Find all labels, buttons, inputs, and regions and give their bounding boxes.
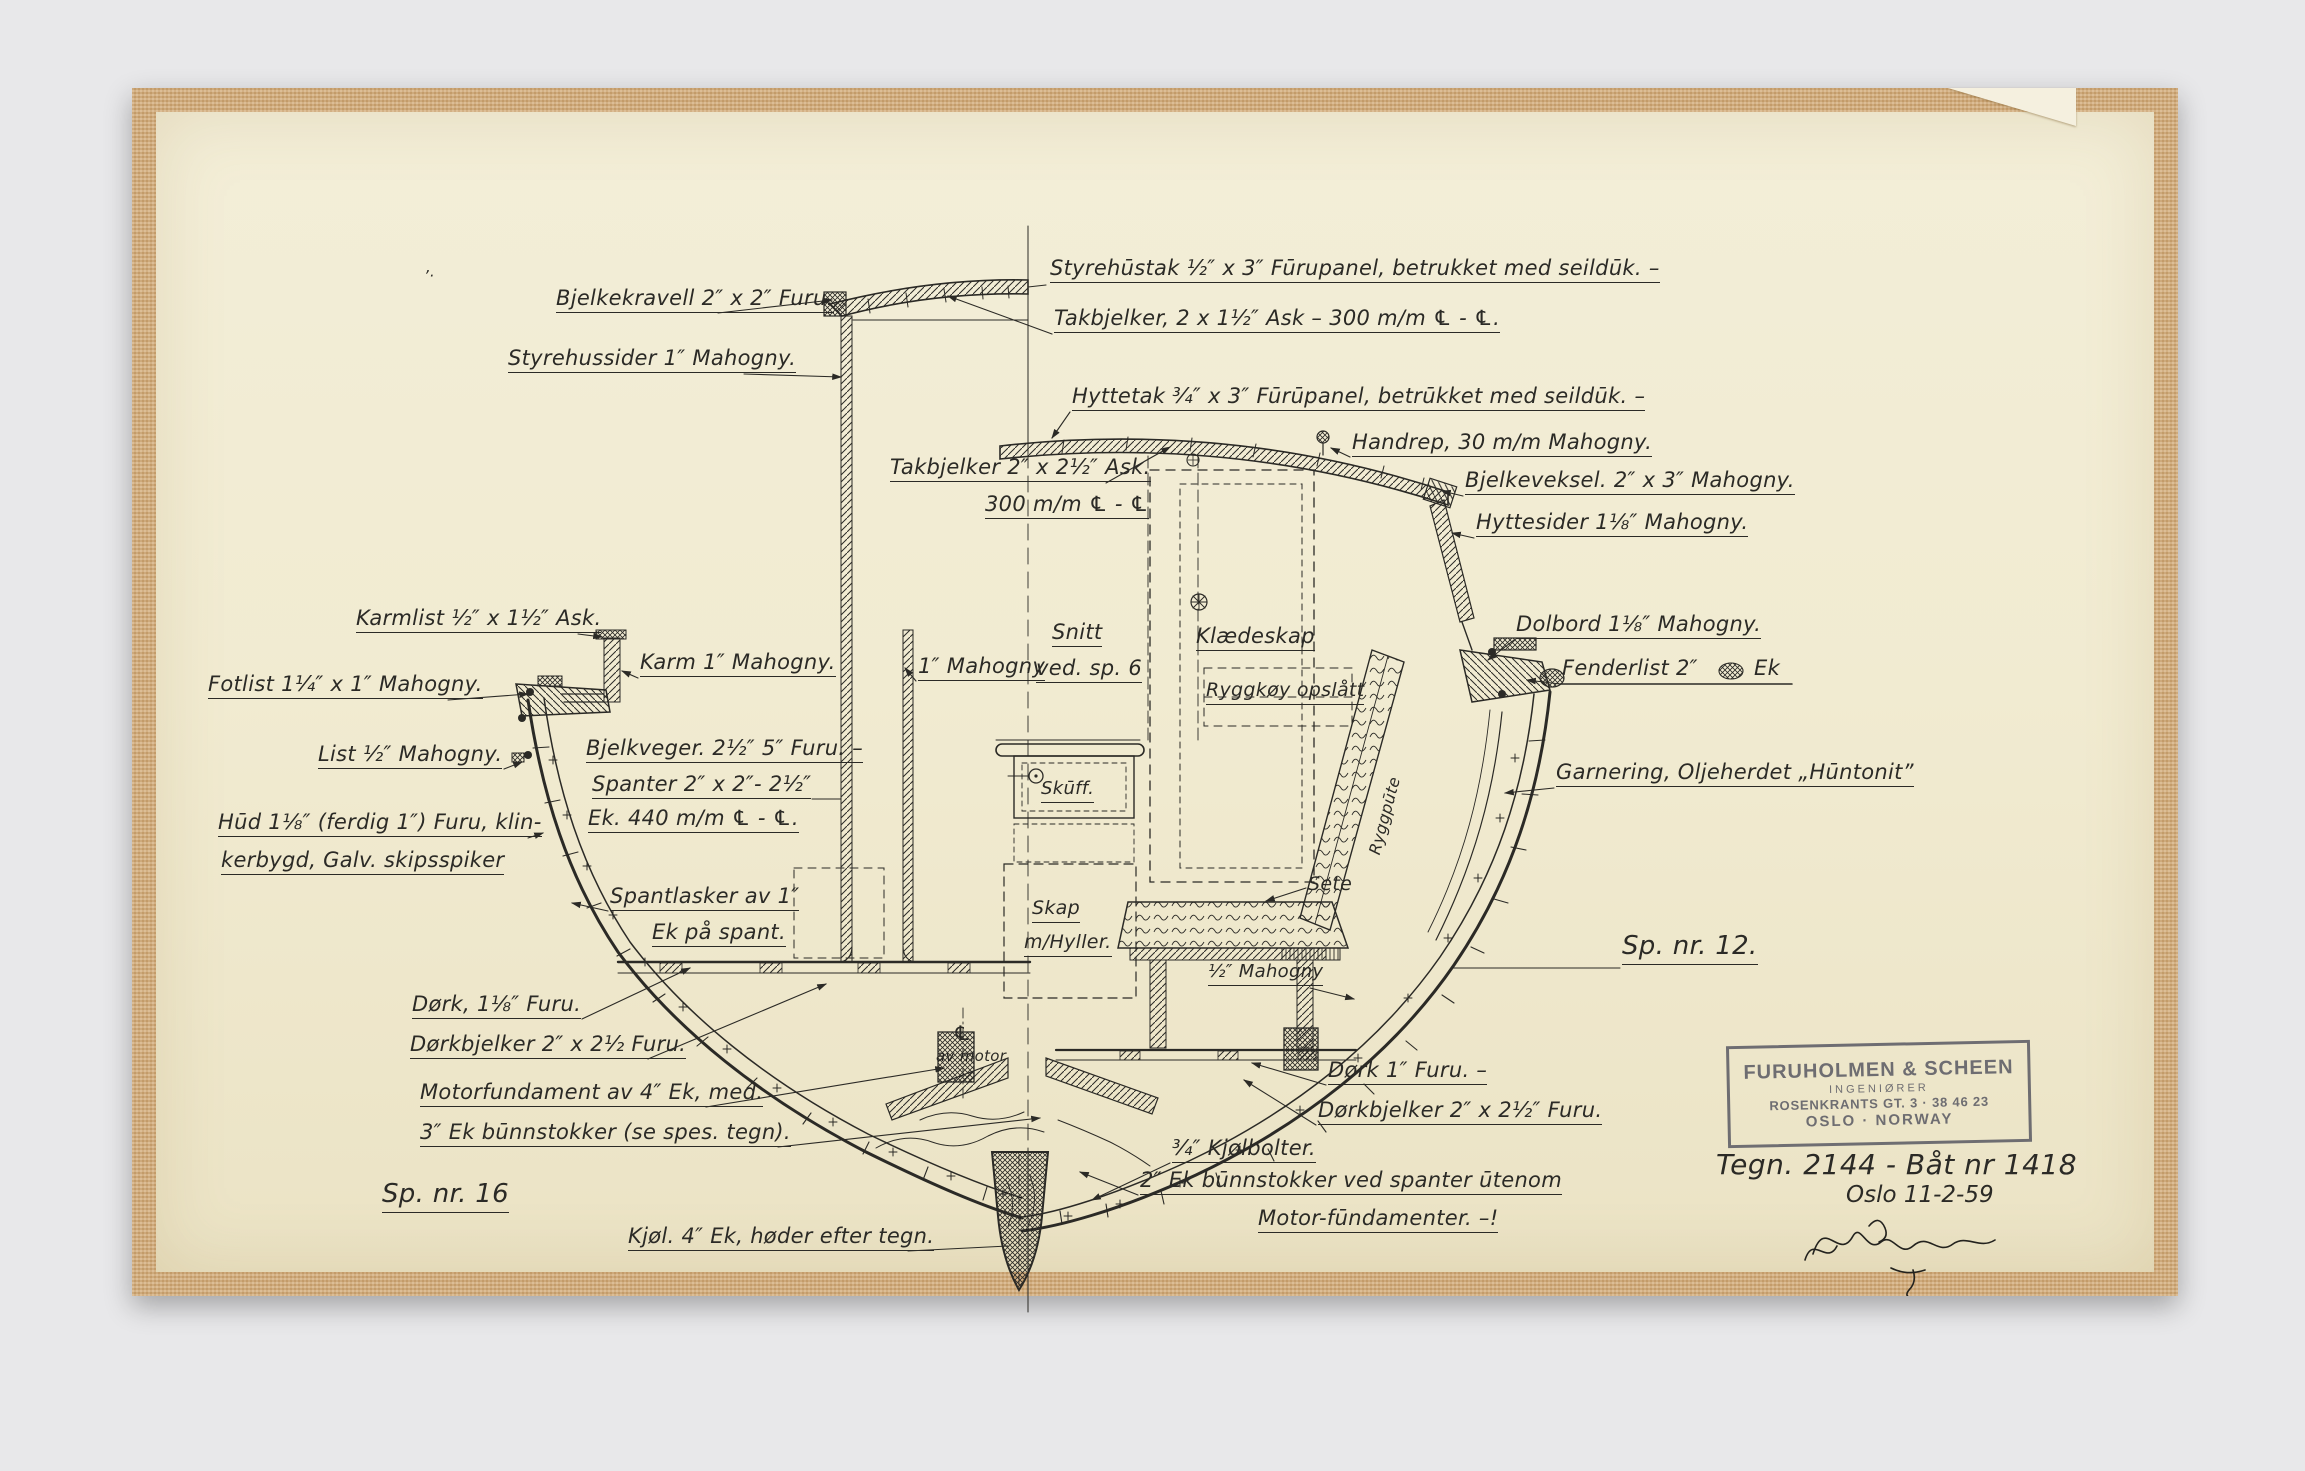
stamp-company-name: FURUHOLMEN & SCHEEN — [1743, 1056, 2014, 1085]
label-dorkbjelker-118: Dørkbjelker 2″ x 2½ Furu. — [410, 1032, 686, 1059]
label-karmlist: Karmlist ½″ x 1½″ Ask. — [356, 606, 601, 633]
label-spantlasker: Spantlasker av 1″ — [610, 884, 799, 911]
label-motor-fundamenter: Motor-fūndamenter. –! — [1258, 1206, 1498, 1233]
label-sete: Sete — [1308, 874, 1352, 896]
label-hud-line2: kerbygd, Galv. skipsspiker — [221, 848, 504, 875]
label-mahogny-1in: 1″ Mahogny — [918, 654, 1045, 681]
company-stamp: FURUHOLMEN & SCHEEN INGENIØRER ROSENKRAN… — [1726, 1040, 2032, 1148]
label-av-motor: av motor — [936, 1048, 1006, 1065]
label-spanter: Spanter 2″ x 2″- 2½″ — [592, 772, 811, 799]
label-list: List ½″ Mahogny. — [318, 742, 502, 769]
label-pen-mark: ’· — [424, 268, 434, 285]
label-ek2-bunnstokker: 2″ Ek būnnstokker ved spanter ūtenom — [1140, 1168, 1562, 1195]
label-handrep: Handrep, 30 m/m Mahogny. — [1352, 430, 1652, 457]
label-sp-nr-12: Sp. nr. 12. — [1622, 932, 1758, 965]
label-bjelkveger: Bjelkveger. 2½″ 5″ Furu. – — [586, 736, 863, 763]
label-ek-paa-spant: Ek på spant. — [652, 920, 786, 947]
label-fenderlist-ek: Ek — [1754, 656, 1780, 680]
label-ved-sp6: ved. sp. 6 — [1036, 656, 1142, 683]
label-styrehussider: Styrehussider 1″ Mahogny. — [508, 346, 796, 373]
stamp-profession: INGENIØRER — [1829, 1082, 1929, 1096]
label-ek3-bunnstokker: 3″ Ek būnnstokker (se spes. tegn). — [420, 1120, 791, 1147]
label-garnering: Garnering, Oljeherdet „Hūntonit” — [1556, 760, 1914, 787]
label-cc-300mm: 300 m/m ℄ - ℄ — [985, 492, 1149, 519]
label-snitt: Snitt — [1052, 620, 1102, 647]
label-takbjelker-hytte: Takbjelker 2″ x 2½″ Ask. — [890, 455, 1151, 482]
label-fenderlist: Fenderlist 2″ — [1562, 656, 1698, 680]
label-kjolbolter: ¾″ Kjølbolter. — [1172, 1136, 1316, 1163]
drawing-number: Tegn. 2144 - Båt nr 1418 — [1716, 1148, 2077, 1181]
stamp-city: OSLO · NORWAY — [1806, 1110, 1954, 1130]
scanned-drawing-page: Styrehūstak ½″ x 3″ Fūrupanel, betrukket… — [0, 0, 2305, 1471]
label-m-hyller: m/Hyller. — [1024, 932, 1112, 957]
label-hyttetak: Hyttetak ¾″ x 3″ Fūrūpanel, betrūkket me… — [1072, 384, 1645, 411]
stamp-address: ROSENKRANTS GT. 3 · 38 46 23 — [1769, 1094, 1989, 1114]
label-dorkbjelker-1: Dørkbjelker 2″ x 2½″ Furu. — [1318, 1098, 1602, 1125]
label-fotlist: Fotlist 1¼″ x 1″ Mahogny. — [208, 672, 483, 699]
label-hyttesider: Hyttesider 1⅛″ Mahogny. — [1476, 510, 1748, 537]
label-takbjelker-styrehus: Takbjelker, 2 x 1½″ Ask – 300 m/m ℄ - ℄. — [1054, 306, 1500, 333]
label-motorfundament: Motorfundament av 4″ Ek, med. — [420, 1080, 763, 1107]
label-dork-118: Dørk, 1⅛″ Furu. — [412, 992, 581, 1019]
label-klaedeskap: Klædeskap — [1196, 624, 1315, 651]
label-styrehustak: Styrehūstak ½″ x 3″ Fūrupanel, betrukket… — [1050, 256, 1660, 283]
label-bjelkekravell: Bjelkekravell 2″ x 2″ Furu. — [556, 286, 834, 313]
label-cl-symbol: ℄ — [953, 1022, 971, 1045]
label-karm: Karm 1″ Mahogny. — [640, 650, 836, 677]
label-kjol: Kjøl. 4″ Ek, høder efter tegn. — [628, 1224, 934, 1251]
label-dolbord: Dolbord 1⅛″ Mahogny. — [1516, 612, 1761, 639]
label-skuff: Skūff. — [1041, 779, 1094, 803]
label-half-mahogny: ½″ Mahogny — [1208, 962, 1323, 986]
label-dork-1: Dørk 1″ Furu. – — [1328, 1058, 1487, 1085]
label-ryggpute: Ryggpūte — [1366, 775, 1404, 857]
label-ryggkoy: Ryggkøy opslått — [1206, 680, 1364, 705]
label-bjelkeveksel: Bjelkeveksel. 2″ x 3″ Mahogny. — [1465, 468, 1795, 495]
label-hud-line1: Hūd 1⅛″ (ferdig 1″) Furu, klin- — [218, 810, 542, 837]
label-sp-nr-16: Sp. nr. 16 — [382, 1180, 509, 1213]
label-ek440: Ek. 440 m/m ℄ - ℄. — [588, 806, 799, 833]
label-skap: Skap — [1032, 898, 1080, 923]
signature — [1795, 1196, 2025, 1296]
